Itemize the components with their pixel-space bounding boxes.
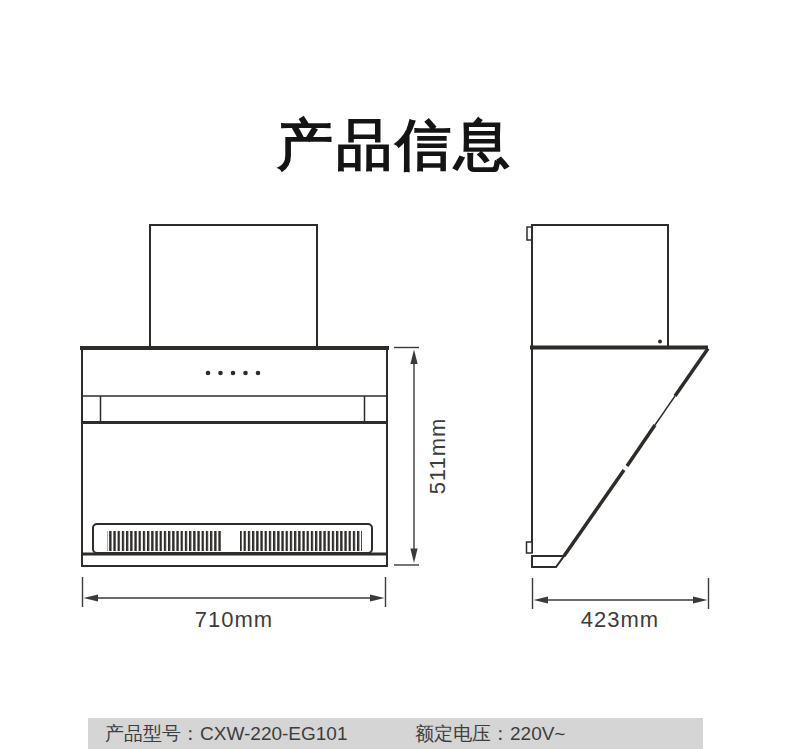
side-slanted-glass-panel — [564, 349, 708, 557]
front-height-dimension — [394, 348, 419, 566]
product-model-value: CXW-220-EG101 — [200, 723, 348, 744]
side-base — [532, 556, 564, 567]
side-chimney-duct — [532, 225, 668, 347]
product-info-page: 产品信息 — [0, 0, 790, 749]
front-width-dimension — [83, 577, 386, 607]
front-height-label: 511mm — [425, 418, 451, 495]
spec-bar: 产品型号：CXW-220-EG101 额定电压：220V~ — [88, 718, 703, 749]
rated-voltage-value: 220V~ — [510, 723, 565, 744]
side-depth-dimension — [533, 578, 709, 609]
front-width-label: 710mm — [195, 607, 273, 633]
front-grease-filter-grille — [93, 524, 372, 553]
side-screw-dot — [658, 340, 662, 344]
rated-voltage-spec: 额定电压：220V~ — [415, 721, 565, 747]
side-mounting-tab-bottom — [527, 542, 533, 553]
front-view-drawing — [80, 225, 389, 566]
front-chimney-duct — [150, 225, 317, 347]
rated-voltage-label: 额定电压： — [415, 723, 510, 744]
product-model-label: 产品型号： — [105, 723, 200, 744]
product-model-spec: 产品型号：CXW-220-EG101 — [105, 721, 348, 747]
side-depth-label: 423mm — [581, 607, 659, 633]
side-view-drawing — [527, 225, 709, 567]
technical-drawings — [0, 0, 790, 749]
